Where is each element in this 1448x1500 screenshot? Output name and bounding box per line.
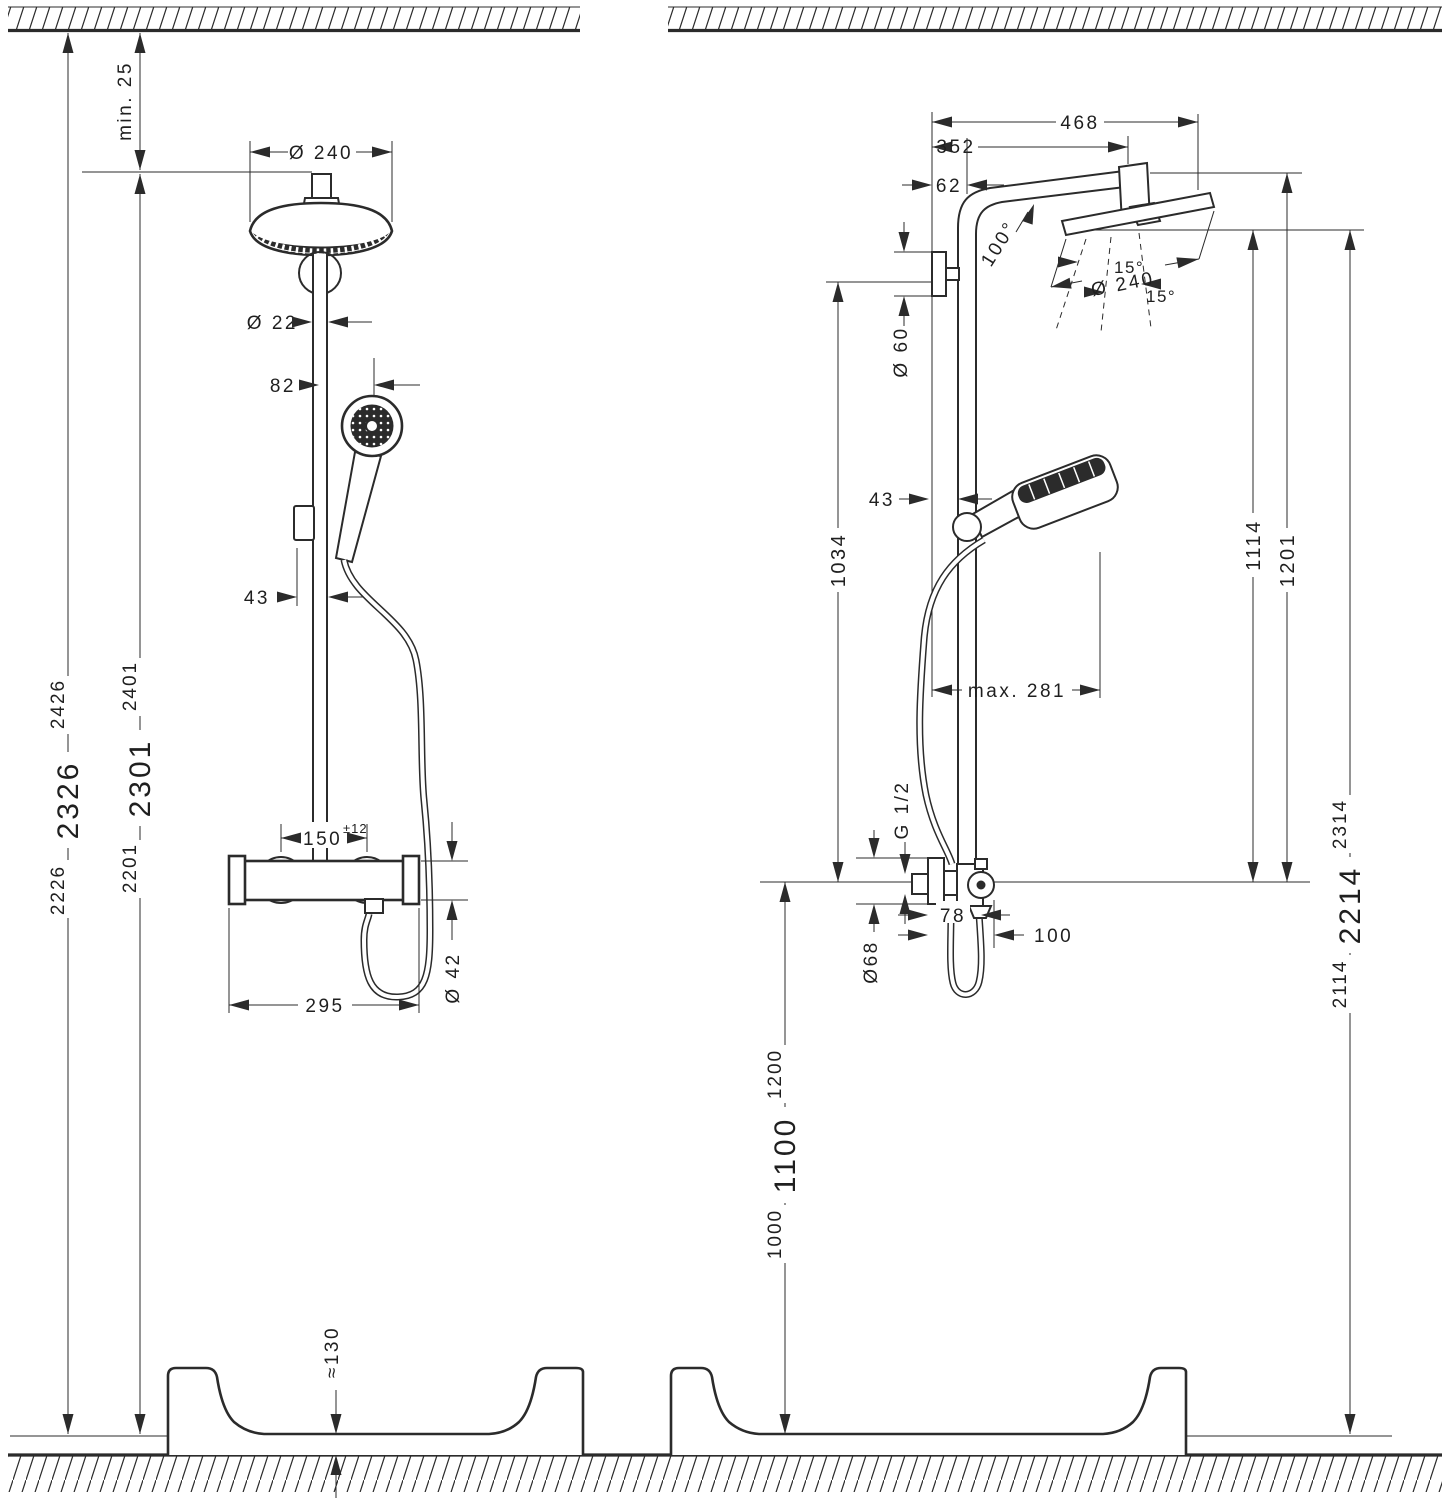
wall-bracket-side (932, 252, 959, 296)
dim-front-total-height: 2326 2426 2226 (44, 33, 85, 1434)
dim-front-valve-centers: 150 ±12 (281, 821, 368, 852)
dim-side-bracket-diameter: Ø 60 (891, 222, 932, 378)
dim-holder-offset-side-label: 43 (869, 490, 895, 511)
dim-max-reach-label: max. 281 (968, 681, 1066, 702)
ceiling-hatch-left (8, 7, 580, 31)
dim-valve-diameter-label: Ø 42 (443, 952, 464, 1003)
dim-side-axis-depth: 78 (898, 901, 1010, 927)
hand-shower-front (336, 396, 402, 562)
dim-valve-height-sub: 1000 (765, 1209, 786, 1259)
dim-front-body-height: 2301 2401 2201 (116, 174, 157, 1434)
dim-min-gap-label: min. 25 (115, 61, 136, 141)
dim-bracket-diameter-label: Ø 60 (891, 326, 912, 377)
shower-tray-side (671, 1368, 1392, 1455)
dim-side-valve-height: 1100 1200 1000 (763, 882, 802, 1434)
hand-shower-side (953, 451, 1122, 541)
dim-tray-height-label: ≈130 (322, 1326, 343, 1378)
side-view: 468 352 62 (760, 112, 1367, 1434)
dim-holder-offset-label: 43 (244, 588, 270, 609)
dim-head-height-main: 2214 (1334, 866, 1367, 945)
shower-system-dimension-drawing: 2326 2426 2226 min. 25 2301 2401 2201 (0, 0, 1448, 1500)
dim-escutcheon-diameter-label: Ø68 (861, 940, 882, 983)
dim-axis-depth-label: 78 (940, 906, 966, 927)
dim-wall-offset-label: 62 (936, 176, 962, 197)
dim-valve-height-sup: 1200 (765, 1049, 786, 1099)
dim-side-arm-angle: 100° (977, 204, 1034, 271)
dim-head-height-sub: 2114 (1330, 960, 1351, 1009)
dim-thread-label: G 1/2 (892, 781, 913, 840)
thermostat-valve-front (229, 856, 419, 913)
dim-side-escutcheon: Ø68 (856, 830, 928, 984)
dim-total-height-main: 2326 (52, 761, 85, 840)
dim-front-depth-label: 100 (1034, 926, 1073, 947)
dim-body-height-sup: 2401 (120, 661, 141, 711)
dim-total-height-sup: 2426 (48, 679, 69, 729)
floor-hatch (8, 1455, 1442, 1492)
shower-hose-front (344, 560, 430, 997)
dim-front-min-gap: min. 25 (115, 33, 146, 170)
dim-front-pipe-diameter: Ø 22 (247, 313, 372, 334)
dim-total-height-sub: 2226 (48, 865, 69, 915)
dim-side-projection-arm: 352 (932, 136, 1128, 164)
dim-front-valve-width: 295 (229, 908, 419, 1017)
dim-handshower-offset-label: 82 (270, 376, 296, 397)
slide-holder-front (294, 506, 314, 540)
dim-head-height-sup: 2314 (1330, 799, 1351, 849)
dim-pipe-diameter-label: Ø 22 (247, 313, 298, 334)
ceiling-hatch-right (668, 7, 1442, 31)
dim-valve-height-main: 1100 (769, 1117, 802, 1194)
dim-valve-width-label: 295 (305, 996, 344, 1017)
dim-head-to-valve-label: 1114 (1243, 519, 1265, 571)
dim-side-head-height: 2214 2314 2114 (1328, 230, 1367, 1434)
dim-valve-centers-sup: ±12 (343, 821, 368, 836)
dim-body-height-sub: 2201 (120, 843, 141, 893)
dim-side-head-to-valve: 1114 (1241, 230, 1265, 882)
dim-front-handshower-offset: 82 (270, 358, 420, 400)
dim-head-diameter-label: Ø 240 (289, 143, 353, 164)
dim-projection-total-label: 468 (1060, 113, 1099, 134)
technical-drawing-sheet: 2326 2426 2226 min. 25 2301 2401 2201 (0, 0, 1448, 1500)
dim-body-height-main: 2301 (124, 739, 157, 818)
overhead-shower-front (250, 174, 392, 255)
dim-side-bracket-to-valve: 1034 (826, 282, 850, 882)
dim-arm-angle-label: 100° (977, 218, 1021, 271)
dim-arm-to-valve-label: 1201 (1277, 533, 1299, 588)
dim-side-arm-to-valve: 1201 (1275, 173, 1299, 882)
front-view: 2326 2426 2226 min. 25 2301 2401 2201 (44, 33, 468, 1498)
shower-tray-front (10, 1368, 583, 1455)
riser-pipe-front (313, 254, 327, 862)
slide-holder-side (953, 513, 981, 541)
dim-bracket-to-valve-label: 1034 (828, 533, 850, 588)
dim-projection-arm-label: 352 (936, 137, 975, 158)
dim-valve-centers-main: 150 (303, 829, 342, 850)
dim-side-thread: G 1/2 (892, 781, 913, 924)
